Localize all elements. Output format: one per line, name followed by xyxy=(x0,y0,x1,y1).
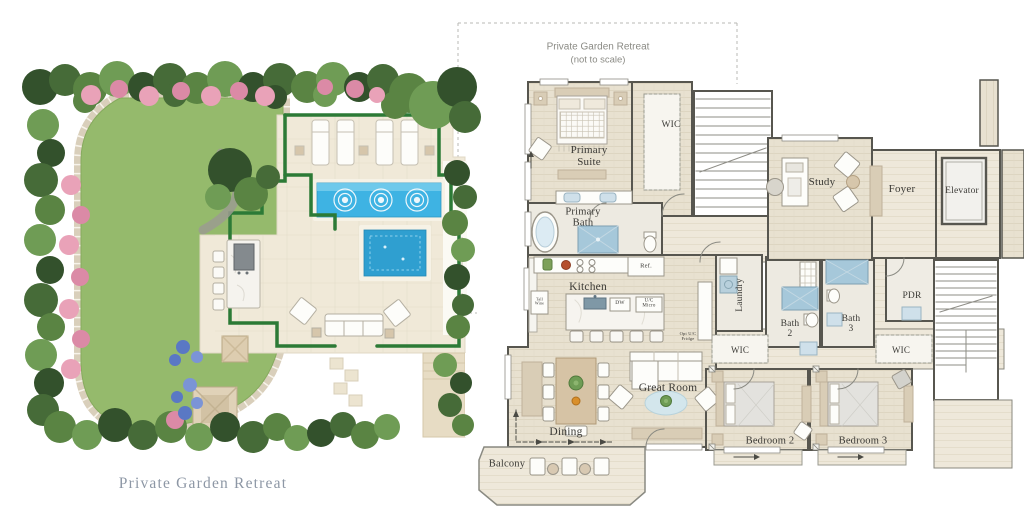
tree-icon xyxy=(34,368,64,398)
label-tall-wine: Tall Wine xyxy=(534,298,546,307)
label-opt-uc-fridge: Opt U/C Fridge xyxy=(676,332,700,342)
flower-pink-icon xyxy=(317,79,333,95)
closet-primary xyxy=(644,94,680,190)
label-wic-primary: WIC xyxy=(661,120,680,130)
flower-blue-icon xyxy=(191,397,203,409)
tree-icon xyxy=(284,425,310,451)
tree-icon xyxy=(185,423,213,451)
label-great-room: Great Room xyxy=(639,382,698,394)
label-bedroom-3: Bedroom 3 xyxy=(839,435,888,446)
stepping-stones xyxy=(330,358,362,406)
tree-icon xyxy=(24,163,58,197)
tree-icon xyxy=(449,101,481,133)
tree-icon xyxy=(35,195,65,225)
tree-icon xyxy=(450,372,472,394)
label-primary-bath: Primary Bath xyxy=(556,207,610,230)
tree-icon xyxy=(452,294,474,316)
tree-icon xyxy=(374,414,400,440)
flower-pink-icon xyxy=(72,330,90,348)
tree-icon xyxy=(24,283,58,317)
flower-pink-icon xyxy=(201,86,221,106)
flower-pink-icon xyxy=(139,86,159,106)
garden-caption: Private Garden Retreat xyxy=(119,475,287,493)
tree-icon xyxy=(451,238,475,262)
flower-pink-icon xyxy=(230,82,248,100)
adjacent-unit-fragment xyxy=(980,80,998,146)
label-kitchen: Kitchen xyxy=(569,281,607,293)
flower-pink-icon xyxy=(110,80,128,98)
balcony-main xyxy=(479,447,645,505)
tree-icon xyxy=(433,353,457,377)
tree-icon xyxy=(44,411,76,443)
floorplan-sheet: Private Garden Retreat (not to scale) Pr… xyxy=(0,0,1024,523)
callout-title: Private Garden Retreat xyxy=(547,42,650,53)
flower-pink-icon xyxy=(81,85,101,105)
tree-icon xyxy=(444,264,470,290)
room-open-living xyxy=(508,255,716,447)
tree-icon xyxy=(98,408,132,442)
label-elevator: Elevator xyxy=(945,186,979,196)
label-foyer: Foyer xyxy=(889,184,916,196)
flower-blue-icon xyxy=(183,378,197,392)
tree-icon xyxy=(210,412,240,442)
label-pdr: PDR xyxy=(902,291,921,301)
label-dw: DW xyxy=(615,301,625,307)
callout-subtitle: (not to scale) xyxy=(571,55,626,66)
adjacent-floor-fragment xyxy=(934,400,1012,468)
balcony-furniture xyxy=(530,458,609,475)
label-ref: Ref. xyxy=(640,262,652,269)
label-bath-2: Bath 2 xyxy=(777,319,803,340)
adjacent-unit-fragment xyxy=(1002,150,1024,258)
flower-pink-icon xyxy=(255,86,275,106)
flower-pink-icon xyxy=(59,235,79,255)
tree-icon xyxy=(453,185,477,209)
flower-pink-icon xyxy=(61,359,81,379)
label-laundry: Laundry xyxy=(735,278,745,312)
flower-pink-icon xyxy=(369,87,385,103)
flower-blue-icon xyxy=(169,354,181,366)
flower-pink-icon xyxy=(172,82,190,100)
outdoor-kitchen xyxy=(213,240,260,310)
tree-icon xyxy=(381,91,409,119)
tree-icon xyxy=(438,393,462,417)
tree-icon xyxy=(25,339,57,371)
tree-icon xyxy=(24,224,56,256)
flower-pink-icon xyxy=(71,268,89,286)
tree-icon xyxy=(27,109,59,141)
flower-blue-icon xyxy=(176,340,190,354)
flower-blue-icon xyxy=(171,391,183,403)
flower-blue-icon xyxy=(178,406,192,420)
tree-icon xyxy=(444,160,470,186)
label-bedroom-2: Bedroom 2 xyxy=(746,435,795,446)
label-study: Study xyxy=(809,177,836,189)
flower-blue-icon xyxy=(191,351,203,363)
tree-icon xyxy=(37,313,65,341)
label-balcony: Balcony xyxy=(489,458,525,469)
tree-icon xyxy=(128,420,158,450)
flower-pink-icon xyxy=(59,299,79,319)
spa xyxy=(359,225,431,281)
label-dining: Dining xyxy=(549,426,582,438)
label-primary-suite: Primary Suite xyxy=(560,145,618,169)
tree-icon xyxy=(442,210,468,236)
label-wic-2: WIC xyxy=(731,346,749,356)
garden-plan xyxy=(22,61,490,453)
tree-icon xyxy=(37,139,65,167)
label-uc-micro: U/C Micro xyxy=(641,299,657,310)
tree-icon xyxy=(437,67,477,107)
tree-icon xyxy=(446,315,470,339)
tree-icon xyxy=(72,420,102,450)
flower-pink-icon xyxy=(61,175,81,195)
flower-pink-icon xyxy=(346,80,364,98)
tree-icon xyxy=(452,414,474,436)
flower-pink-icon xyxy=(72,206,90,224)
label-wic-3: WIC xyxy=(892,346,910,356)
label-bath-3: Bath 3 xyxy=(838,314,864,335)
tree-icon xyxy=(36,256,64,284)
